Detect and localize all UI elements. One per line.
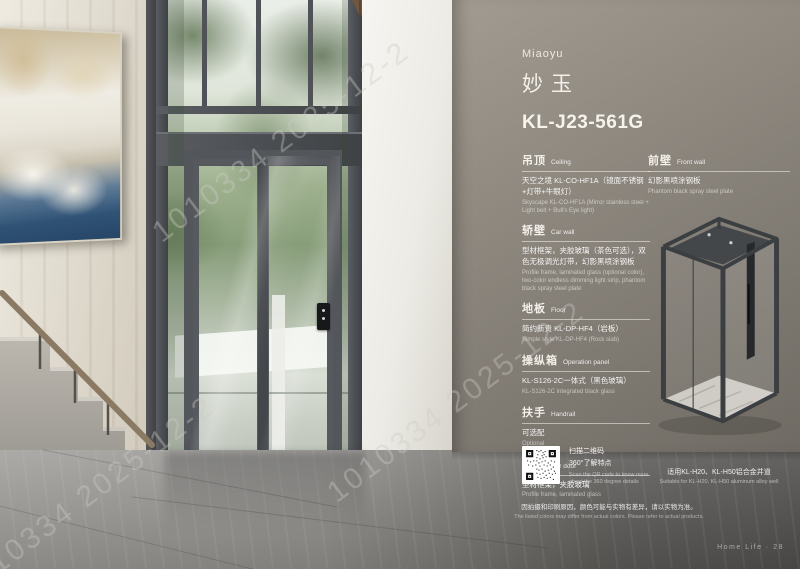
spec-desc-cn: 简约新贵 KL-DP-HF4（岩板）: [522, 324, 650, 335]
elevator-top-beam: [156, 106, 362, 114]
spec-title-en: Handrail: [551, 411, 575, 418]
spec-title: 轿壁 Car wall: [522, 222, 650, 238]
spec-title: 操纵箱 Operation panel: [522, 352, 650, 368]
qr-caption-en: Scan the QR code to know more about the …: [569, 472, 655, 487]
divider: [522, 171, 650, 172]
spec-desc-cn: KL-S126-2C一体式（黑色玻璃）: [522, 376, 650, 387]
spec-section-operation-panel: 操纵箱 Operation panel KL-S126-2C一体式（黑色玻璃） …: [522, 352, 650, 397]
spec-section-front-wall: 前壁 Front wall 幻影黑喷涂钢板 Phantom black spra…: [648, 152, 790, 197]
spec-title-cn: 操纵箱: [522, 352, 558, 368]
spec-desc-en: Profile frame, laminated glass: [522, 492, 650, 500]
color-disclaimer: 因拍摄和印刷原因，颜色可能与实物有差异，请以实物为准。 The listed c…: [502, 501, 716, 521]
brand-name-cn: 妙玉: [522, 68, 580, 98]
spec-title-en: Ceiling: [551, 159, 571, 166]
wall-painting: [0, 26, 122, 246]
brochure-page: Miaoyu 妙玉 KL-J23-561G 吊顶 Ceiling 天空之境 KL…: [0, 0, 800, 569]
spec-title-cn: 扶手: [522, 404, 546, 420]
model-number: KL-J23-561G: [522, 112, 644, 134]
qr-block: 扫描二维码 360°了解特点 Scan the QR code to know …: [522, 446, 655, 487]
disclaimer-en: The listed colors may differ from actual…: [502, 514, 716, 521]
spec-desc-cn: 可选配: [522, 428, 650, 439]
spec-section-handrail: 扶手 Handrail 可选配 Optional: [522, 404, 650, 449]
qr-caption: 扫描二维码 360°了解特点 Scan the QR code to know …: [569, 446, 655, 487]
skylight-mullion: [202, 0, 207, 112]
qr-code: [522, 446, 560, 484]
page-footer: Home Life · 28: [717, 544, 784, 551]
disclaimer-cn: 因拍摄和印刷原因，颜色可能与实物有差异，请以实物为准。: [502, 501, 716, 511]
spec-section-ceiling: 吊顶 Ceiling 天空之境 KL-CO-HF1A（镜面不锈钢+灯带+牛眼灯）…: [522, 152, 650, 215]
spec-panel-content: Miaoyu 妙玉 KL-J23-561G 吊顶 Ceiling 天空之境 KL…: [452, 0, 800, 569]
side-glass: [168, 0, 184, 505]
spec-title-en: Floor: [551, 307, 566, 314]
divider: [522, 319, 650, 320]
spec-title: 前壁 Front wall: [648, 152, 790, 168]
divider: [522, 371, 650, 372]
spec-title: 地板 Floor: [522, 300, 650, 316]
shaft-note-cn: 适用KL-H20、KL-H50铝合金井道: [648, 467, 790, 477]
spec-desc-en: KL-S126-2C integrated black glass: [522, 389, 650, 397]
elevator-call-panel: [317, 303, 330, 330]
spec-title-en: Operation panel: [563, 359, 609, 366]
spec-desc-cn: 幻影黑喷涂钢板: [648, 176, 790, 187]
spec-desc-cn: 型材框架，夹胶玻璃（茶色可选），双色无极调光灯带，幻影黑喷涂钢板: [522, 246, 650, 268]
spec-desc-en: Skyscape KL-CO-HF1A (Mirror stainless st…: [522, 200, 650, 216]
spec-section-car-wall: 轿壁 Car wall 型材框架，夹胶玻璃（茶色可选），双色无极调光灯带，幻影黑…: [522, 222, 650, 293]
call-button-icon: [322, 309, 325, 312]
qr-caption-line2: 360°了解特点: [569, 458, 655, 468]
shaft-note-en: Suitable for KL-H20, KL-H50 aluminum all…: [648, 479, 790, 485]
elevator-right-post: [348, 0, 362, 505]
spec-title: 扶手 Handrail: [522, 404, 650, 420]
call-button-icon: [322, 317, 325, 320]
spec-desc-en: Phantom black spray steel plate: [648, 189, 790, 197]
spec-title: 吊顶 Ceiling: [522, 152, 650, 168]
divider: [648, 171, 790, 172]
spec-column-right: 前壁 Front wall 幻影黑喷涂钢板 Phantom black spra…: [648, 152, 790, 485]
brand-name-en: Miaoyu: [522, 48, 563, 60]
spec-title-cn: 前壁: [648, 152, 672, 168]
skylight-mullion: [256, 0, 261, 112]
spec-title-cn: 地板: [522, 300, 546, 316]
divider: [522, 241, 650, 242]
spec-desc-en: Simple style KL-DP-HF4 (Rock slab): [522, 337, 650, 345]
shaft-compatibility-note: 适用KL-H20、KL-H50铝合金井道 Suitable for KL-H20…: [648, 467, 790, 485]
spec-title-en: Car wall: [551, 229, 574, 236]
divider: [522, 423, 650, 424]
elevator-cabin-diagram: [649, 205, 789, 453]
skylight-mullion: [308, 0, 313, 112]
spec-desc-cn: 天空之境 KL-CO-HF1A（镜面不锈钢+灯带+牛眼灯）: [522, 176, 650, 198]
side-glass: [342, 0, 348, 505]
spec-title-en: Front wall: [677, 159, 705, 166]
spec-desc-en: Profile frame, laminated glass (optional…: [522, 270, 650, 293]
spec-section-floor: 地板 Floor 简约新贵 KL-DP-HF4（岩板） Simple style…: [522, 300, 650, 345]
spec-title-cn: 吊顶: [522, 152, 546, 168]
qr-caption-line1: 扫描二维码: [569, 446, 655, 456]
spec-title-cn: 轿壁: [522, 222, 546, 238]
